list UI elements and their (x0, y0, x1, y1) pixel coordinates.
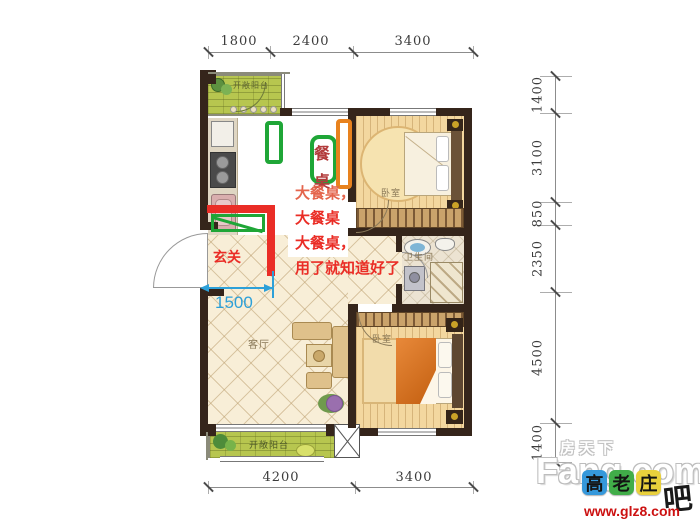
wall-segment (348, 108, 390, 116)
shaft-box (334, 424, 360, 458)
wall-segment (200, 72, 208, 122)
decor-dot (260, 106, 267, 113)
fridge (211, 121, 234, 147)
dim-right-4: 2350 (531, 234, 546, 284)
headboard (452, 334, 463, 408)
wall-segment (326, 424, 334, 436)
wall-segment (464, 108, 472, 436)
wall-segment (348, 312, 356, 428)
balcony-bottom-edge (206, 432, 208, 460)
headboard (451, 130, 462, 200)
dim-top-1: 1800 (204, 34, 274, 49)
plant-flower-icon (326, 395, 343, 412)
marker-green-rect-1 (265, 121, 283, 164)
lamp-icon (451, 321, 458, 328)
entry-door-arc (153, 233, 208, 288)
table-char-top: 餐 (314, 140, 330, 164)
dim-line-right (555, 76, 556, 462)
note-line: 大餐桌， (295, 181, 400, 206)
bedroom-bottom-label: 卧室 (372, 332, 392, 345)
balcony-bottom-label: 开敞阳台 (249, 438, 289, 451)
marker-red-bar-horizontal (207, 205, 275, 213)
lamp-icon (451, 413, 458, 420)
dim-bottom-2: 3400 (379, 470, 449, 485)
window (292, 108, 348, 116)
dim-right-5: 4500 (531, 333, 546, 383)
annotation-notes: 大餐桌， 大餐桌 大餐桌， 用了就知道好了 (295, 181, 400, 281)
decor-dot (270, 106, 277, 113)
marker-orange-rect (336, 119, 352, 189)
dim-line-bottom (208, 487, 473, 488)
sofa-back (292, 322, 332, 340)
wall-segment (348, 304, 358, 312)
window (378, 428, 436, 436)
wall-segment (200, 424, 216, 436)
blanket-fold (420, 370, 436, 404)
plant-icon (221, 84, 232, 95)
note-line: 大餐桌， (295, 231, 400, 256)
wall-segment (280, 108, 292, 116)
glz-tile-3: 庄 (636, 470, 661, 495)
stove-burner (216, 171, 229, 184)
wall-segment (392, 304, 472, 312)
dim-top-3: 3400 (378, 34, 448, 49)
armchair (306, 372, 332, 389)
glz-watermark: 高 老 庄 (582, 470, 661, 495)
dim-right-1: 1400 (531, 70, 546, 120)
table-decor (313, 350, 325, 362)
pillow (436, 165, 449, 191)
balcony-bottom-window (220, 456, 324, 462)
blue-dim-arrow-left (200, 284, 209, 292)
glz-tile-1: 高 (582, 470, 607, 495)
wall-segment (436, 428, 472, 436)
living-room-label: 客厅 (248, 336, 270, 351)
stove-burner (216, 156, 229, 169)
pillow (438, 372, 452, 398)
dim-right-3: 850 (531, 189, 546, 239)
kitchen-balcony-line (208, 114, 280, 116)
wall-segment (396, 284, 402, 304)
glz-url: www.glz8.com (584, 503, 680, 519)
blue-dim-tick (272, 271, 274, 298)
dim-line-top (208, 52, 473, 53)
wall-segment (200, 288, 208, 428)
marker-red-bar-vertical (267, 205, 275, 276)
bathroom-label: 卫生间 (404, 250, 434, 263)
dim-right-2: 3100 (531, 133, 546, 183)
window (390, 108, 436, 116)
toilet (435, 238, 455, 251)
window (216, 424, 326, 432)
dim-top-2: 2400 (276, 34, 346, 49)
wall-segment (200, 118, 208, 230)
floor-plan-image: 开敞阳台 卧室 卫生间 卧室 客厅 开敞阳台 玄关 1800 2400 3400… (0, 0, 700, 525)
pillow (438, 342, 452, 368)
lamp-icon (452, 121, 459, 128)
balcony-top-label: 开敞阳台 (233, 80, 269, 91)
note-line: 用了就知道好了 (295, 256, 400, 281)
wall-segment (360, 428, 378, 436)
dim-bottom-1: 4200 (246, 470, 316, 485)
note-line: 大餐桌 (295, 206, 400, 231)
blue-dim-line (203, 287, 273, 289)
pillow (436, 136, 449, 162)
shower-area (430, 262, 463, 303)
balcony-top-edge (208, 72, 290, 74)
entry-label: 玄关 (213, 247, 241, 267)
plant-icon (225, 440, 236, 451)
glz-tile-2: 老 (609, 470, 634, 495)
blue-dim-label: 1500 (215, 293, 253, 313)
